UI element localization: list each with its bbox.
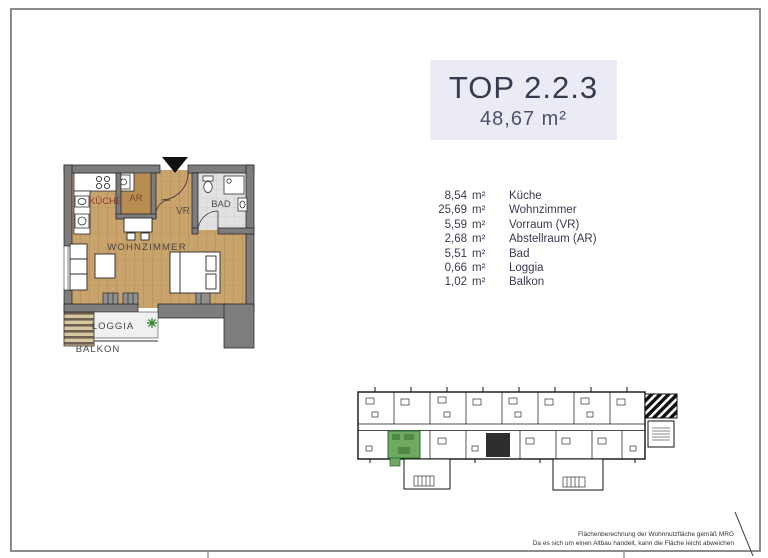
unit-total-area: 48,67 m² xyxy=(480,108,567,131)
room-area-value: 2,68 xyxy=(435,232,467,246)
room-name: Loggia xyxy=(493,261,597,275)
room-name: Abstellraum (AR) xyxy=(493,232,597,246)
plant-icon xyxy=(147,318,157,328)
room-area-unit: m² xyxy=(467,218,493,232)
room-name: Bad xyxy=(493,247,597,261)
corner-slash xyxy=(735,512,753,556)
unit-floor-plan: KÜCHE AR VR BAD WOHNZIMMER LOGGIA BALKON xyxy=(64,157,254,355)
roof-hatch xyxy=(645,394,677,418)
label-vr: VR xyxy=(176,206,190,217)
disclaimer-line-2: Da es sich um einen Altbau handelt, kann… xyxy=(414,540,734,549)
room-name: Balkon xyxy=(493,275,597,289)
unit-title: TOP 2.2.3 xyxy=(449,70,598,106)
room-area-unit: m² xyxy=(467,275,493,289)
stair-core xyxy=(486,433,510,457)
title-box: TOP 2.2.3 48,67 m² xyxy=(430,60,617,140)
label-loggia: LOGGIA xyxy=(92,321,134,332)
room-area-list: 8,54 m² Küche 25,69 m² Wohnzimmer 5,59 m… xyxy=(435,189,597,290)
disclaimer: Flächenberechnung der Wohnnutzfläche gem… xyxy=(414,531,734,548)
right-stairs xyxy=(648,421,674,447)
label-balkon: BALKON xyxy=(76,344,121,355)
room-name: Vorraum (VR) xyxy=(493,218,597,232)
room-area-value: 25,69 xyxy=(435,203,467,217)
sink-icon xyxy=(75,196,89,207)
building-overview-plan xyxy=(358,387,677,490)
room-area-unit: m² xyxy=(467,247,493,261)
room-area-unit: m² xyxy=(467,203,493,217)
room-area-value: 1,02 xyxy=(435,275,467,289)
balcony-steps xyxy=(64,312,94,346)
room-name: Küche xyxy=(493,189,597,203)
room-area-unit: m² xyxy=(467,261,493,275)
room-area-value: 5,59 xyxy=(435,218,467,232)
room-area-value: 8,54 xyxy=(435,189,467,203)
floorplan-sheet: KÜCHE AR VR BAD WOHNZIMMER LOGGIA BALKON xyxy=(0,0,768,558)
room-area-unit: m² xyxy=(467,232,493,246)
label-wohnzimmer: WOHNZIMMER xyxy=(107,242,187,253)
label-bad: BAD xyxy=(211,199,231,210)
label-ar: AR xyxy=(129,193,142,204)
label-kueche: KÜCHE xyxy=(89,196,122,207)
room-name: Wohnzimmer xyxy=(493,203,597,217)
room-area-value: 0,66 xyxy=(435,261,467,275)
room-area-unit: m² xyxy=(467,189,493,203)
plan-drawing-svg: KÜCHE AR VR BAD WOHNZIMMER LOGGIA BALKON xyxy=(0,0,768,558)
room-area-value: 5,51 xyxy=(435,247,467,261)
disclaimer-line-1: Flächenberechnung der Wohnnutzfläche gem… xyxy=(414,531,734,540)
